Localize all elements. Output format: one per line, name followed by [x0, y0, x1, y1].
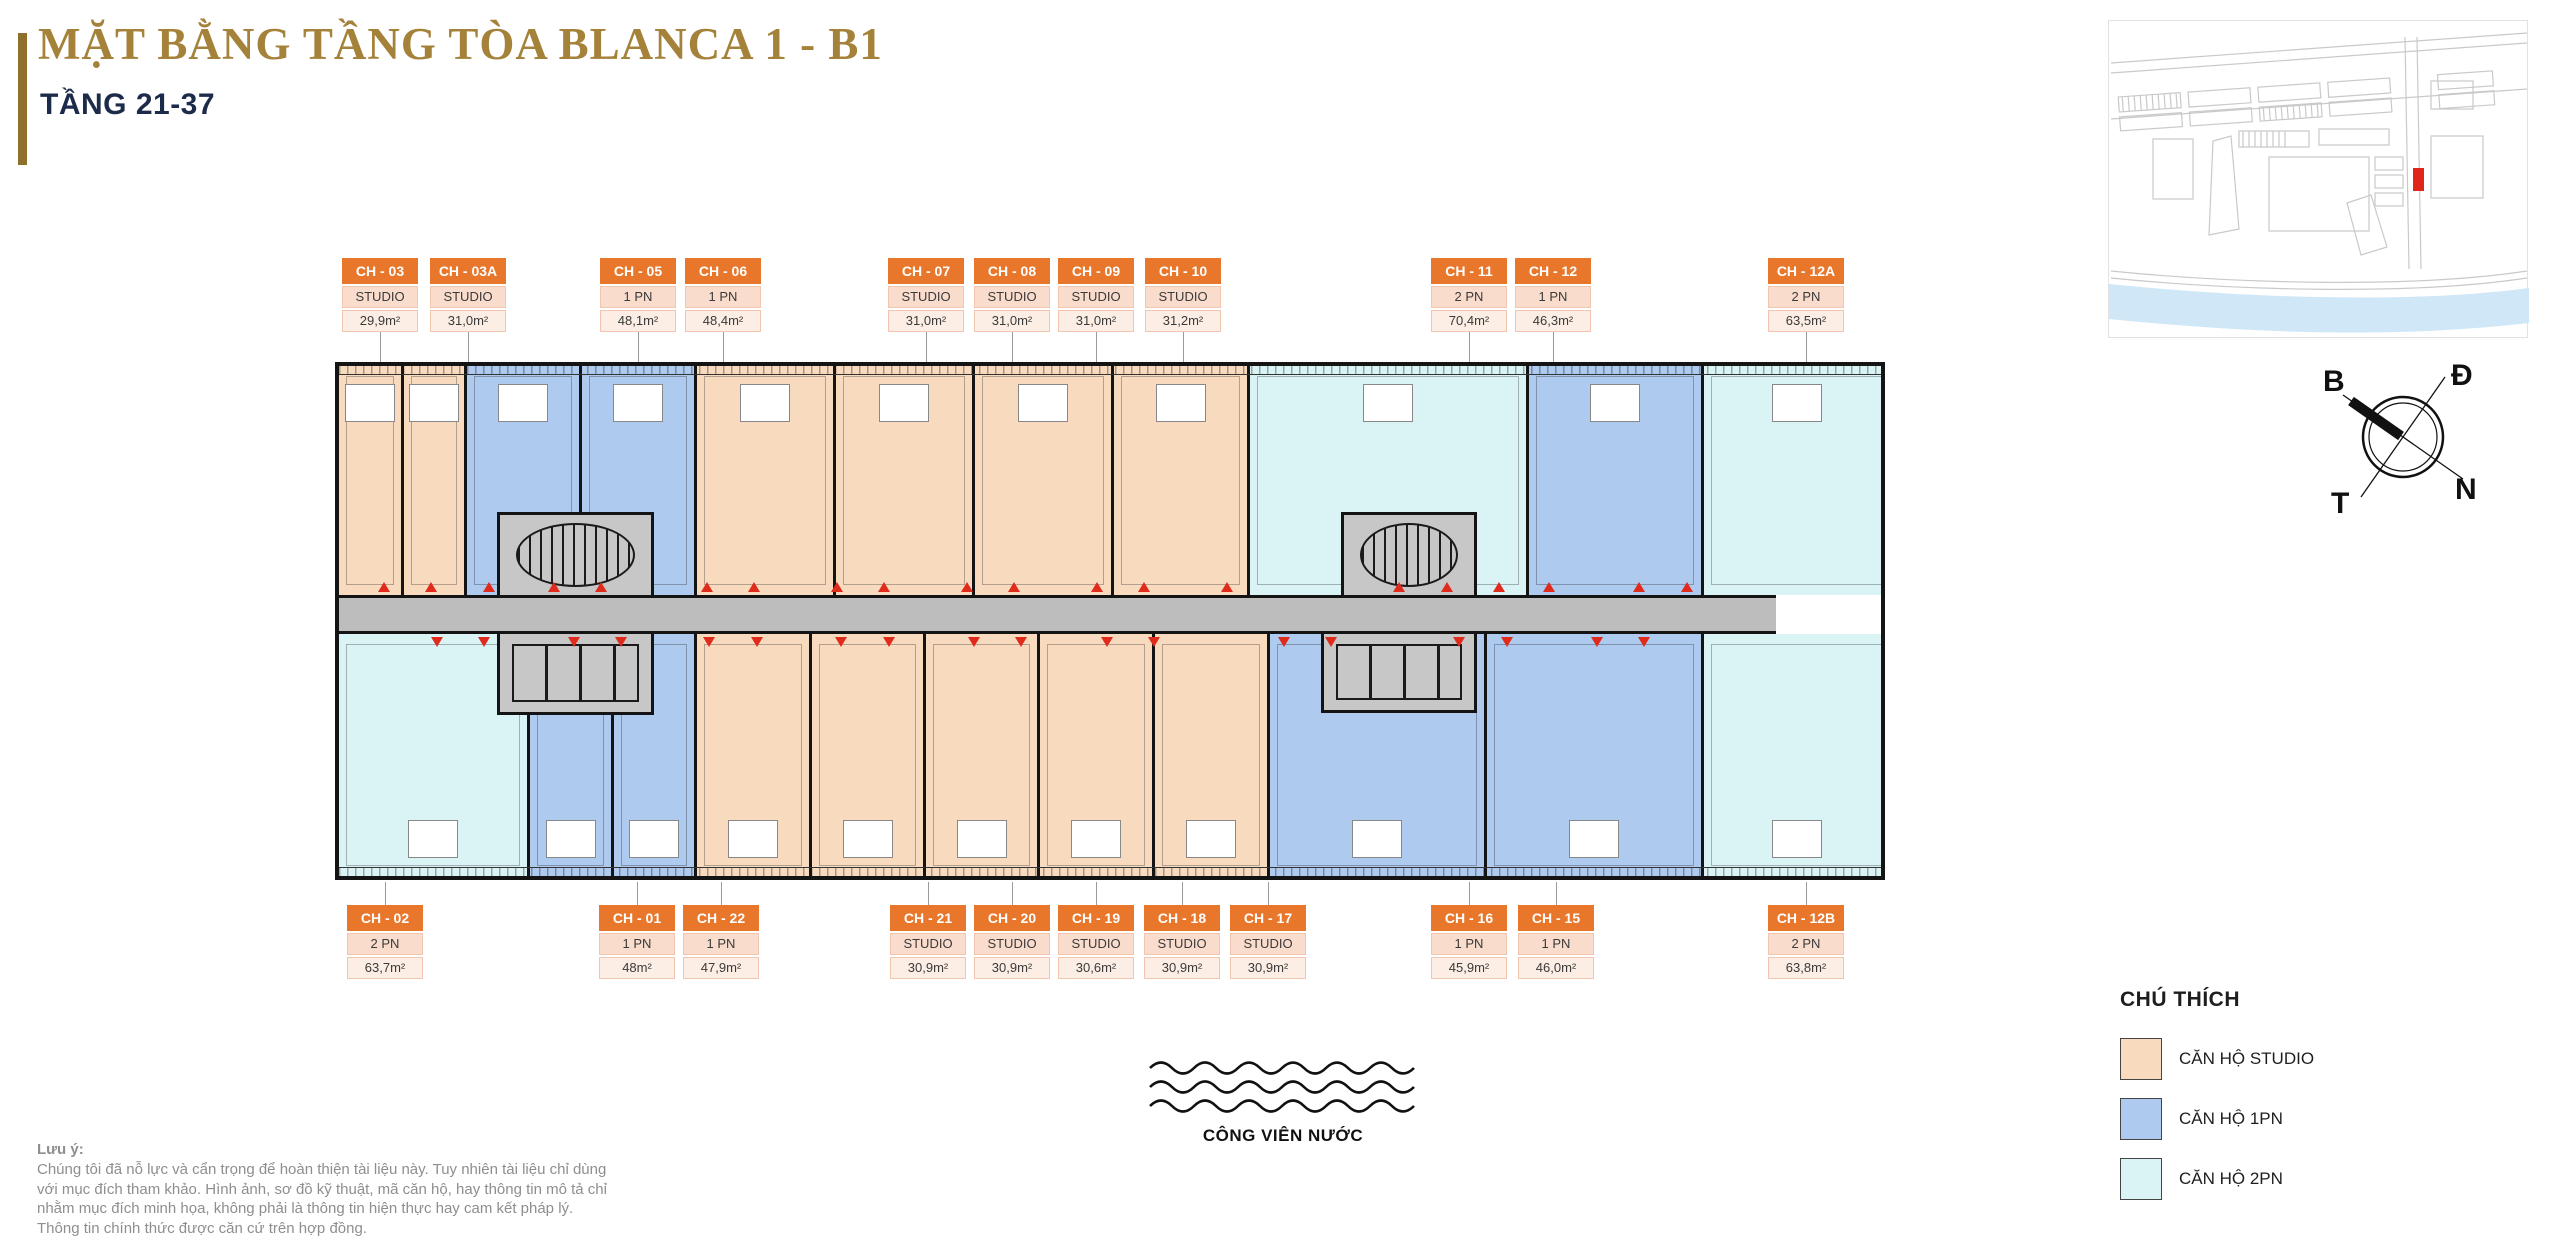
water-park-label: CÔNG VIÊN NƯỚC — [1147, 1126, 1419, 1146]
water-area — [2109, 284, 2529, 333]
entry-marker — [431, 637, 443, 647]
site-map-drawing — [2109, 21, 2529, 339]
label-connector-line — [1012, 882, 1013, 905]
unit-card-CH-03: CH - 03STUDIO29,9m² — [342, 258, 418, 332]
label-connector-line — [721, 882, 722, 905]
stair-core-left — [497, 512, 654, 598]
unit-type: 1 PN — [600, 286, 676, 308]
unit-code: CH - 15 — [1518, 905, 1594, 931]
unit-type: STUDIO — [974, 286, 1050, 308]
compass-label-west: T — [2331, 487, 2349, 520]
unit-card-CH-02: CH - 022 PN63,7m² — [347, 905, 423, 979]
unit-card-CH-21: CH - 21STUDIO30,9m² — [890, 905, 966, 979]
entry-marker — [1148, 637, 1160, 647]
label-connector-line — [1096, 882, 1097, 905]
entry-marker — [1543, 582, 1555, 592]
entry-marker — [378, 582, 390, 592]
entry-marker — [1278, 637, 1290, 647]
entry-marker — [548, 582, 560, 592]
unit-card-CH-22: CH - 221 PN47,9m² — [683, 905, 759, 979]
unit-area-value: 30,9m² — [1144, 957, 1220, 979]
disclaimer-line: Thông tin chính thức được căn cứ trên hợ… — [37, 1219, 607, 1239]
label-connector-line — [1556, 882, 1557, 905]
unit-code: CH - 19 — [1058, 905, 1134, 931]
label-connector-line — [1553, 332, 1554, 362]
unit-card-CH-01: CH - 011 PN48m² — [599, 905, 675, 979]
label-connector-line — [928, 882, 929, 905]
site-locator-map — [2108, 20, 2528, 338]
unit-area-CH-21 — [694, 634, 809, 876]
unit-type: 2 PN — [1768, 933, 1844, 955]
unit-area-value: 70,4m² — [1431, 310, 1507, 332]
disclaimer-line: Chúng tôi đã nỗ lực và cẩn trọng để hoàn… — [37, 1160, 607, 1180]
unit-type: 1 PN — [1518, 933, 1594, 955]
compass-label-south: N — [2455, 473, 2477, 506]
stair-core-right — [1341, 512, 1477, 598]
legend-title: CHÚ THÍCH — [2120, 988, 2314, 1012]
building-location-marker — [2413, 168, 2424, 191]
label-connector-line — [1469, 332, 1470, 362]
water-park: CÔNG VIÊN NƯỚC — [1147, 1058, 1419, 1146]
unit-type: 1 PN — [683, 933, 759, 955]
unit-code: CH - 03 — [342, 258, 418, 284]
unit-card-CH-05: CH - 051 PN48,1m² — [600, 258, 676, 332]
entry-marker — [883, 637, 895, 647]
entry-marker — [1638, 637, 1650, 647]
unit-area-value: 48,1m² — [600, 310, 676, 332]
label-connector-line — [1806, 882, 1807, 905]
entry-marker — [878, 582, 890, 592]
unit-code: CH - 17 — [1230, 905, 1306, 931]
unit-area-CH-03A — [401, 366, 464, 595]
brochure-page: MẶT BẰNG TẦNG TÒA BLANCA 1 - B1 TẦNG 21-… — [0, 0, 2560, 1251]
unit-area-CH-09 — [972, 366, 1111, 595]
legend-item-studio: CĂN HỘ STUDIO — [2120, 1038, 2314, 1080]
legend-label-studio: CĂN HỘ STUDIO — [2179, 1049, 2314, 1069]
unit-area-value: 63,8m² — [1768, 957, 1844, 979]
unit-area-value: 45,9m² — [1431, 957, 1507, 979]
unit-area-CH-20 — [809, 634, 923, 876]
unit-area-value: 63,7m² — [347, 957, 423, 979]
label-connector-line — [1096, 332, 1097, 362]
entry-marker — [1101, 637, 1113, 647]
unit-area-value: 63,5m² — [1768, 310, 1844, 332]
entry-marker — [1681, 582, 1693, 592]
entry-marker — [1221, 582, 1233, 592]
legend-swatch-studio — [2120, 1038, 2162, 1080]
unit-type: 1 PN — [1515, 286, 1591, 308]
unit-area-value: 47,9m² — [683, 957, 759, 979]
unit-type: STUDIO — [1058, 286, 1134, 308]
unit-code: CH - 16 — [1431, 905, 1507, 931]
label-connector-line — [638, 332, 639, 362]
unit-code: CH - 21 — [890, 905, 966, 931]
unit-type: STUDIO — [430, 286, 506, 308]
unit-card-CH-12: CH - 121 PN46,3m² — [1515, 258, 1591, 332]
unit-card-CH-06: CH - 061 PN48,4m² — [685, 258, 761, 332]
entry-marker — [751, 637, 763, 647]
unit-area-CH-07 — [694, 366, 833, 595]
legend-label-1pn: CĂN HỘ 1PN — [2179, 1109, 2283, 1129]
unit-card-CH-18: CH - 18STUDIO30,9m² — [1144, 905, 1220, 979]
unit-card-CH-20: CH - 20STUDIO30,9m² — [974, 905, 1050, 979]
unit-code: CH - 03A — [430, 258, 506, 284]
unit-code: CH - 18 — [1144, 905, 1220, 931]
label-connector-line — [926, 332, 927, 362]
unit-type: STUDIO — [342, 286, 418, 308]
entry-marker — [1138, 582, 1150, 592]
label-connector-line — [1469, 882, 1470, 905]
unit-type: STUDIO — [1058, 933, 1134, 955]
unit-area-CH-15 — [1484, 634, 1701, 876]
label-connector-line — [1012, 332, 1013, 362]
disclaimer-line: với mục đích tham khảo. Hình ảnh, sơ đồ … — [37, 1180, 607, 1200]
unit-area-value: 31,0m² — [974, 310, 1050, 332]
entry-marker — [483, 582, 495, 592]
compass: B Đ N T — [2318, 352, 2488, 522]
unit-area-value: 48m² — [599, 957, 675, 979]
legend-label-2pn: CĂN HỘ 2PN — [2179, 1169, 2283, 1189]
label-connector-line — [380, 332, 381, 362]
unit-area-value: 31,0m² — [430, 310, 506, 332]
unit-area-CH-10 — [1111, 366, 1247, 595]
unit-type: 1 PN — [1431, 933, 1507, 955]
entry-marker — [835, 637, 847, 647]
entry-marker — [1453, 637, 1465, 647]
entry-marker — [1501, 637, 1513, 647]
label-connector-line — [1182, 882, 1183, 905]
entry-marker — [1393, 582, 1405, 592]
floor-plan — [335, 362, 1885, 880]
entry-marker — [615, 637, 627, 647]
unit-type: STUDIO — [890, 933, 966, 955]
page-title: MẶT BẰNG TẦNG TÒA BLANCA 1 - B1 — [38, 18, 883, 70]
label-connector-line — [1806, 332, 1807, 362]
legend-swatch-2pn — [2120, 1158, 2162, 1200]
unit-card-CH-12A: CH - 12A2 PN63,5m² — [1768, 258, 1844, 332]
unit-area-value: 30,9m² — [1230, 957, 1306, 979]
unit-area-value: 46,3m² — [1515, 310, 1591, 332]
legend-swatch-1pn — [2120, 1098, 2162, 1140]
unit-type: 2 PN — [1768, 286, 1844, 308]
unit-code: CH - 10 — [1145, 258, 1221, 284]
entry-marker — [703, 637, 715, 647]
central-corridor — [339, 595, 1776, 634]
unit-type: STUDIO — [888, 286, 964, 308]
unit-area-value: 31,2m² — [1145, 310, 1221, 332]
unit-card-CH-12B: CH - 12B2 PN63,8m² — [1768, 905, 1844, 979]
unit-card-CH-17: CH - 17STUDIO30,9m² — [1230, 905, 1306, 979]
unit-type: STUDIO — [1145, 286, 1221, 308]
unit-area-value: 31,0m² — [888, 310, 964, 332]
unit-code: CH - 05 — [600, 258, 676, 284]
water-waves-icon — [1147, 1058, 1419, 1116]
legend-item-2pn: CĂN HỘ 2PN — [2120, 1158, 2314, 1200]
label-connector-line — [1268, 882, 1269, 905]
page-subtitle: TẦNG 21-37 — [40, 88, 215, 122]
entry-marker — [1633, 582, 1645, 592]
unit-area-value: 46,0m² — [1518, 957, 1594, 979]
label-connector-line — [723, 332, 724, 362]
unit-code: CH - 09 — [1058, 258, 1134, 284]
unit-area-value: 30,9m² — [974, 957, 1050, 979]
unit-code: CH - 12B — [1768, 905, 1844, 931]
entry-marker — [425, 582, 437, 592]
balcony-strip-bottom — [339, 867, 1881, 876]
entry-marker — [595, 582, 607, 592]
unit-code: CH - 01 — [599, 905, 675, 931]
label-connector-line — [637, 882, 638, 905]
unit-type: 1 PN — [685, 286, 761, 308]
unit-card-CH-15: CH - 151 PN46,0m² — [1518, 905, 1594, 979]
title-accent-bar — [18, 33, 27, 165]
entry-marker — [478, 637, 490, 647]
unit-area-CH-17 — [1152, 634, 1267, 876]
entry-marker — [701, 582, 713, 592]
entry-marker — [831, 582, 843, 592]
unit-card-CH-10: CH - 10STUDIO31,2m² — [1145, 258, 1221, 332]
unit-type: 1 PN — [599, 933, 675, 955]
entry-marker — [1008, 582, 1020, 592]
disclaimer-heading: Lưu ý: — [37, 1140, 607, 1160]
unit-type: STUDIO — [974, 933, 1050, 955]
unit-code: CH - 08 — [974, 258, 1050, 284]
unit-card-CH-03A: CH - 03ASTUDIO31,0m² — [430, 258, 506, 332]
unit-area-CH-12A — [1701, 366, 1881, 595]
unit-area-value: 30,9m² — [890, 957, 966, 979]
entry-marker — [1325, 637, 1337, 647]
entry-marker — [1591, 637, 1603, 647]
entry-marker — [1441, 582, 1453, 592]
compass-label-north: B — [2323, 365, 2345, 398]
unit-code: CH - 07 — [888, 258, 964, 284]
compass-label-east: Đ — [2451, 359, 2473, 392]
legend-item-1pn: CĂN HỘ 1PN — [2120, 1098, 2314, 1140]
unit-area-CH-08 — [833, 366, 972, 595]
unit-area-CH-18 — [1037, 634, 1152, 876]
unit-card-CH-16: CH - 161 PN45,9m² — [1431, 905, 1507, 979]
unit-card-CH-09: CH - 09STUDIO31,0m² — [1058, 258, 1134, 332]
disclaimer-line: nhằm mục đích minh họa, không phải là th… — [37, 1199, 607, 1219]
unit-type: 2 PN — [347, 933, 423, 955]
label-connector-line — [468, 332, 469, 362]
unit-type: STUDIO — [1230, 933, 1306, 955]
unit-code: CH - 06 — [685, 258, 761, 284]
legend: CHÚ THÍCH CĂN HỘ STUDIO CĂN HỘ 1PN CĂN H… — [2120, 988, 2314, 1218]
unit-area-CH-03 — [339, 366, 401, 595]
unit-code: CH - 12 — [1515, 258, 1591, 284]
label-connector-line — [385, 882, 386, 905]
unit-area-CH-12B — [1701, 634, 1881, 876]
disclaimer-note: Lưu ý: Chúng tôi đã nỗ lực và cẩn trọng … — [37, 1140, 607, 1239]
unit-card-CH-07: CH - 07STUDIO31,0m² — [888, 258, 964, 332]
unit-area-CH-12 — [1526, 366, 1701, 595]
unit-area-value: 31,0m² — [1058, 310, 1134, 332]
unit-code: CH - 22 — [683, 905, 759, 931]
entry-marker — [968, 637, 980, 647]
unit-area-value: 29,9m² — [342, 310, 418, 332]
entry-marker — [1493, 582, 1505, 592]
unit-code: CH - 12A — [1768, 258, 1844, 284]
entry-marker — [1091, 582, 1103, 592]
label-connector-line — [1183, 332, 1184, 362]
unit-area-value: 30,6m² — [1058, 957, 1134, 979]
unit-code: CH - 20 — [974, 905, 1050, 931]
entry-marker — [568, 637, 580, 647]
entry-marker — [748, 582, 760, 592]
unit-card-CH-08: CH - 08STUDIO31,0m² — [974, 258, 1050, 332]
entry-marker — [1015, 637, 1027, 647]
unit-card-CH-11: CH - 112 PN70,4m² — [1431, 258, 1507, 332]
unit-card-CH-19: CH - 19STUDIO30,6m² — [1058, 905, 1134, 979]
entry-marker — [961, 582, 973, 592]
unit-code: CH - 02 — [347, 905, 423, 931]
balcony-strip-top — [339, 366, 1881, 375]
unit-area-CH-19 — [923, 634, 1037, 876]
unit-code: CH - 11 — [1431, 258, 1507, 284]
unit-type: 2 PN — [1431, 286, 1507, 308]
unit-type: STUDIO — [1144, 933, 1220, 955]
unit-area-value: 48,4m² — [685, 310, 761, 332]
